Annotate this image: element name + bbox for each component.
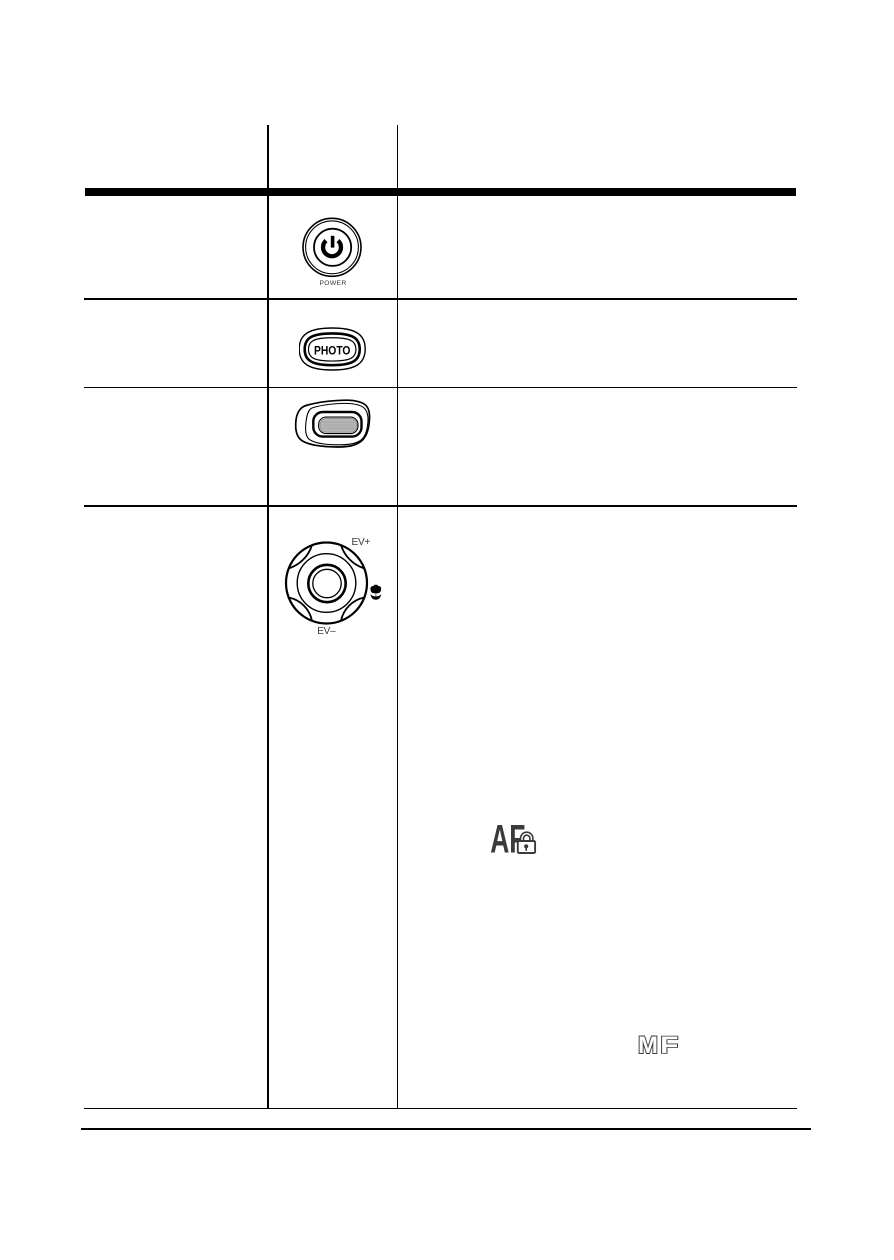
svg-text:F: F — [660, 1031, 678, 1058]
svg-text:PHOTO: PHOTO — [314, 345, 351, 358]
svg-text:POWER: POWER — [319, 280, 346, 287]
svg-text:M: M — [638, 1032, 658, 1059]
